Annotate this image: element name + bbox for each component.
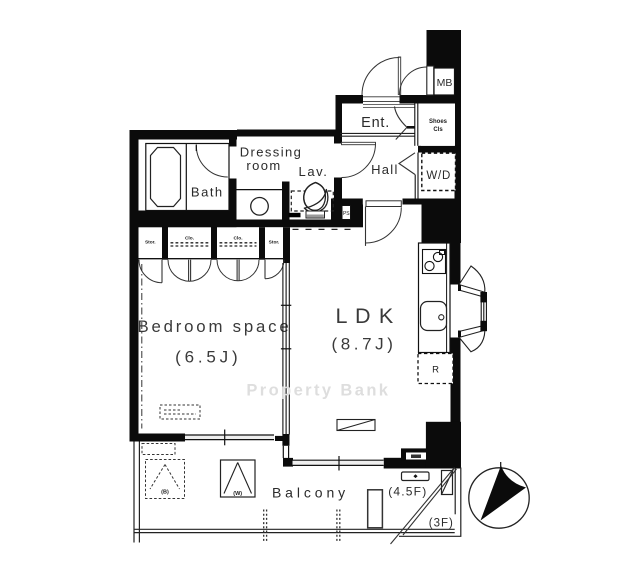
svg-text:Balcony: Balcony <box>272 485 349 501</box>
svg-text:(4.5F): (4.5F) <box>388 485 427 499</box>
svg-text:(B): (B) <box>161 490 169 496</box>
svg-text:L D K: L D K <box>336 304 395 328</box>
svg-text:Clo.: Clo. <box>233 236 242 242</box>
svg-text:Stor.: Stor. <box>269 240 280 246</box>
svg-text:Cls: Cls <box>433 127 443 133</box>
svg-text:MB: MB <box>437 77 453 89</box>
svg-text:Bath: Bath <box>191 185 224 200</box>
svg-text:(W): (W) <box>233 491 242 497</box>
svg-text:Shoes: Shoes <box>429 119 448 125</box>
svg-text:(3F): (3F) <box>429 518 454 530</box>
svg-text:PS: PS <box>343 211 350 217</box>
svg-text:R: R <box>432 365 439 376</box>
svg-text:(6.5J): (6.5J) <box>175 347 241 366</box>
svg-text:Bedroom space: Bedroom space <box>138 317 292 336</box>
svg-text:Property Bank: Property Bank <box>246 382 390 400</box>
svg-text:Stor.: Stor. <box>145 240 156 246</box>
svg-text:room: room <box>246 158 281 173</box>
svg-text:(8.7J): (8.7J) <box>331 334 396 353</box>
svg-text:Ent.: Ent. <box>361 115 390 131</box>
svg-text:W/D: W/D <box>426 170 451 182</box>
svg-text:Hall: Hall <box>371 162 399 177</box>
svg-text:Clo.: Clo. <box>185 236 194 242</box>
svg-text:Lav.: Lav. <box>298 164 328 179</box>
